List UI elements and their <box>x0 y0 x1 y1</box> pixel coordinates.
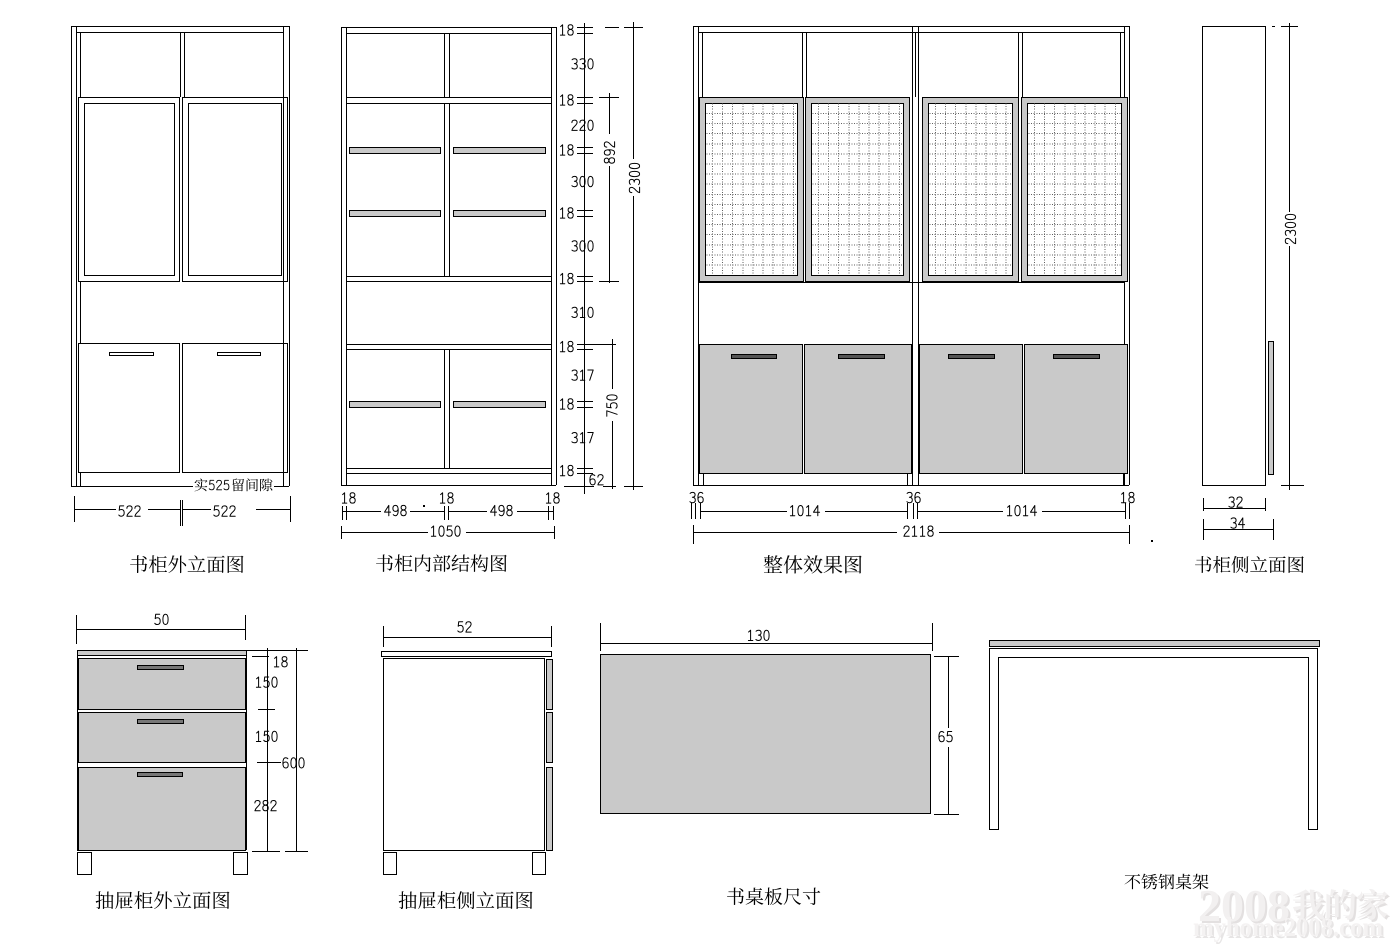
svg-text:myhome2008.com: myhome2008.com <box>1193 911 1383 942</box>
